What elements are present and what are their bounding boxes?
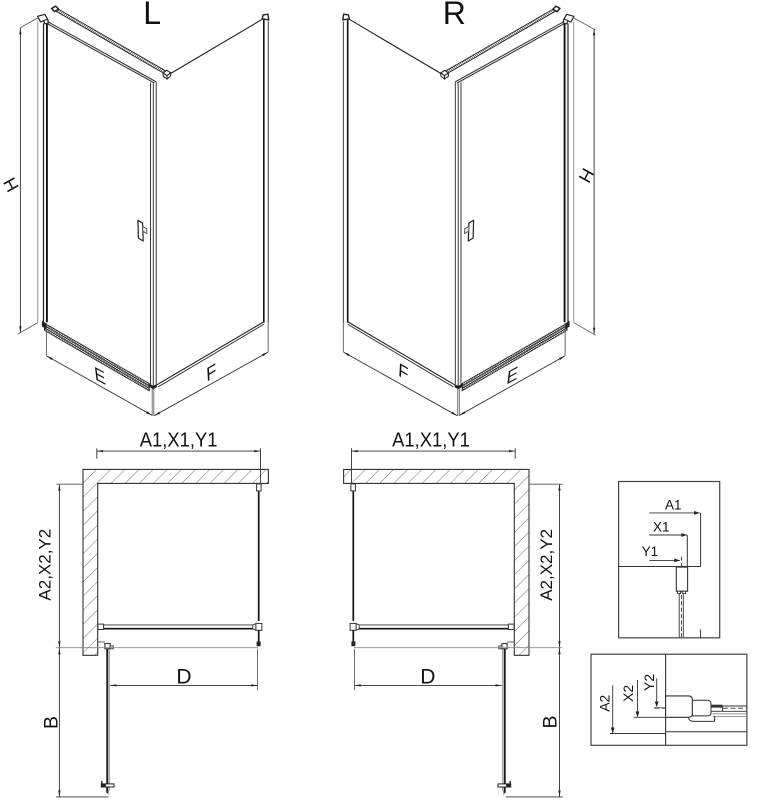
svg-text:Y1: Y1 [642, 544, 659, 559]
svg-text:X2: X2 [620, 685, 636, 702]
svg-text:A1: A1 [665, 497, 682, 512]
svg-text:A1,X1,Y1: A1,X1,Y1 [392, 430, 470, 452]
svg-text:D: D [420, 666, 435, 689]
svg-text:X1: X1 [653, 520, 670, 535]
svg-text:A2,X2,Y2: A2,X2,Y2 [537, 529, 556, 601]
svg-text:A2: A2 [597, 694, 613, 711]
svg-text:B: B [40, 716, 62, 729]
svg-text:A1,X1,Y1: A1,X1,Y1 [140, 430, 218, 452]
svg-text:R: R [443, 0, 466, 31]
svg-text:A2,X2,Y2: A2,X2,Y2 [36, 529, 55, 601]
svg-text:L: L [143, 0, 161, 31]
svg-text:Y2: Y2 [641, 674, 657, 691]
svg-text:D: D [176, 666, 191, 689]
svg-text:B: B [539, 715, 561, 728]
